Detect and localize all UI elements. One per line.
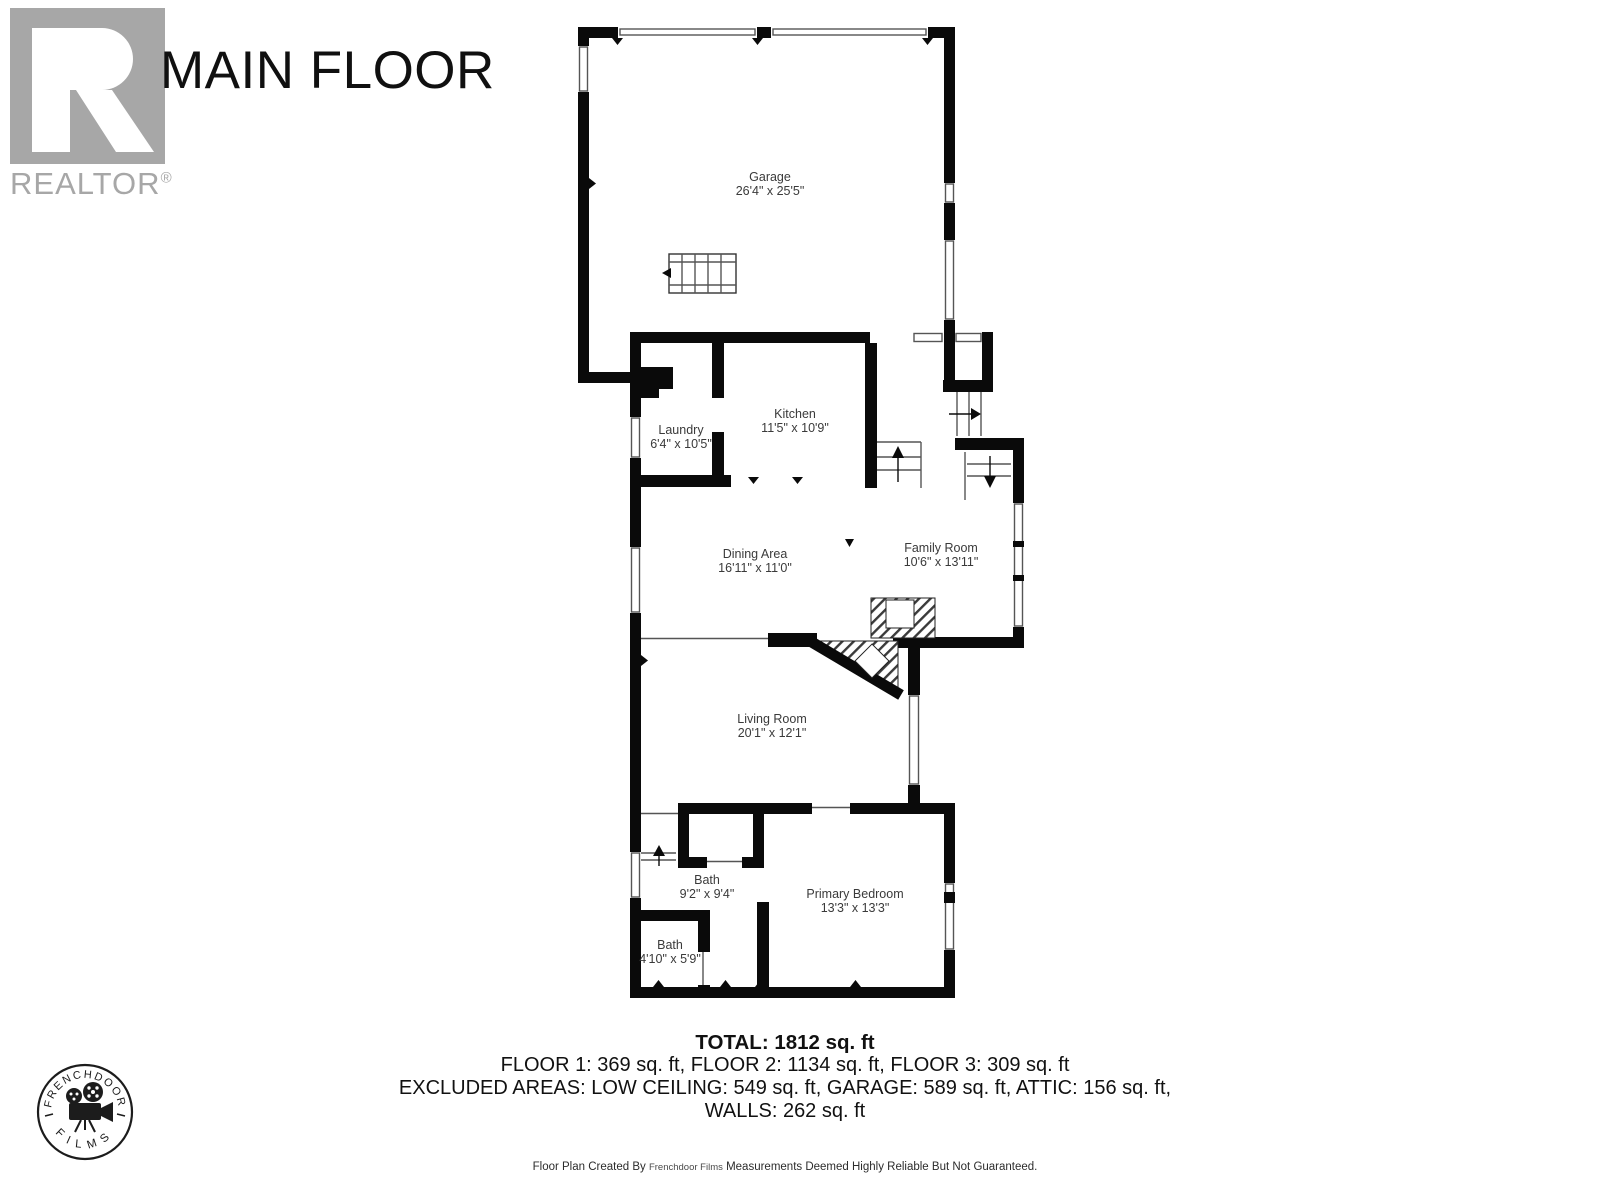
room-dims: 9'2" x 9'4" (680, 887, 735, 901)
film-camera-icon (66, 1082, 113, 1132)
room-name: Bath (639, 938, 701, 952)
room-label-primary: Primary Bedroom13'3" x 13'3" (806, 887, 903, 915)
room-dims: 4'10" x 5'9" (639, 952, 701, 966)
room-label-family: Family Room10'6" x 13'11" (904, 541, 979, 569)
total-area: TOTAL: 1812 sq. ft (0, 1031, 1570, 1054)
room-label-bath2: Bath4'10" x 5'9" (639, 938, 701, 966)
room-dims: 10'6" x 13'11" (904, 555, 979, 569)
room-label-dining: Dining Area16'11" x 11'0" (718, 547, 792, 575)
room-dims: 6'4" x 10'5" (650, 437, 712, 451)
room-name: Primary Bedroom (806, 887, 903, 901)
room-name: Kitchen (761, 407, 829, 421)
room-dims: 26'4" x 25'5" (736, 184, 805, 198)
room-name: Bath (680, 873, 735, 887)
room-name: Family Room (904, 541, 979, 555)
walls-area: WALLS: 262 sq. ft (0, 1100, 1570, 1123)
room-label-laundry: Laundry6'4" x 10'5" (650, 423, 712, 451)
room-dims: 11'5" x 10'9" (761, 421, 829, 435)
room-label-kitchen: Kitchen11'5" x 10'9" (761, 407, 829, 435)
room-label-garage: Garage26'4" x 25'5" (736, 170, 805, 198)
room-name: Living Room (737, 712, 806, 726)
floor-areas: FLOOR 1: 369 sq. ft, FLOOR 2: 1134 sq. f… (0, 1054, 1570, 1077)
disclaimer: Floor Plan Created By Frenchdoor Films M… (0, 1161, 1570, 1173)
room-name: Dining Area (718, 547, 792, 561)
room-name: Garage (736, 170, 805, 184)
room-dims: 20'1" x 12'1" (737, 726, 806, 740)
room-dims: 13'3" x 13'3" (806, 901, 903, 915)
room-name: Laundry (650, 423, 712, 437)
area-summary: TOTAL: 1812 sq. ft FLOOR 1: 369 sq. ft, … (0, 1031, 1570, 1123)
room-dims: 16'11" x 11'0" (718, 561, 792, 575)
stamp-bottom-text: FILMS (53, 1127, 117, 1152)
room-label-living: Living Room20'1" x 12'1" (737, 712, 806, 740)
frenchdoor-films-stamp: FRENCHDOOR FILMS (5, 1032, 165, 1192)
excluded-areas: EXCLUDED AREAS: LOW CEILING: 549 sq. ft,… (0, 1077, 1570, 1100)
room-label-bath1: Bath9'2" x 9'4" (680, 873, 735, 901)
disclaimer-created-by: Floor Plan Created By (533, 1161, 646, 1173)
disclaimer-company: Frenchdoor Films (649, 1162, 723, 1173)
disclaimer-text: Measurements Deemed Highly Reliable But … (726, 1161, 1037, 1173)
